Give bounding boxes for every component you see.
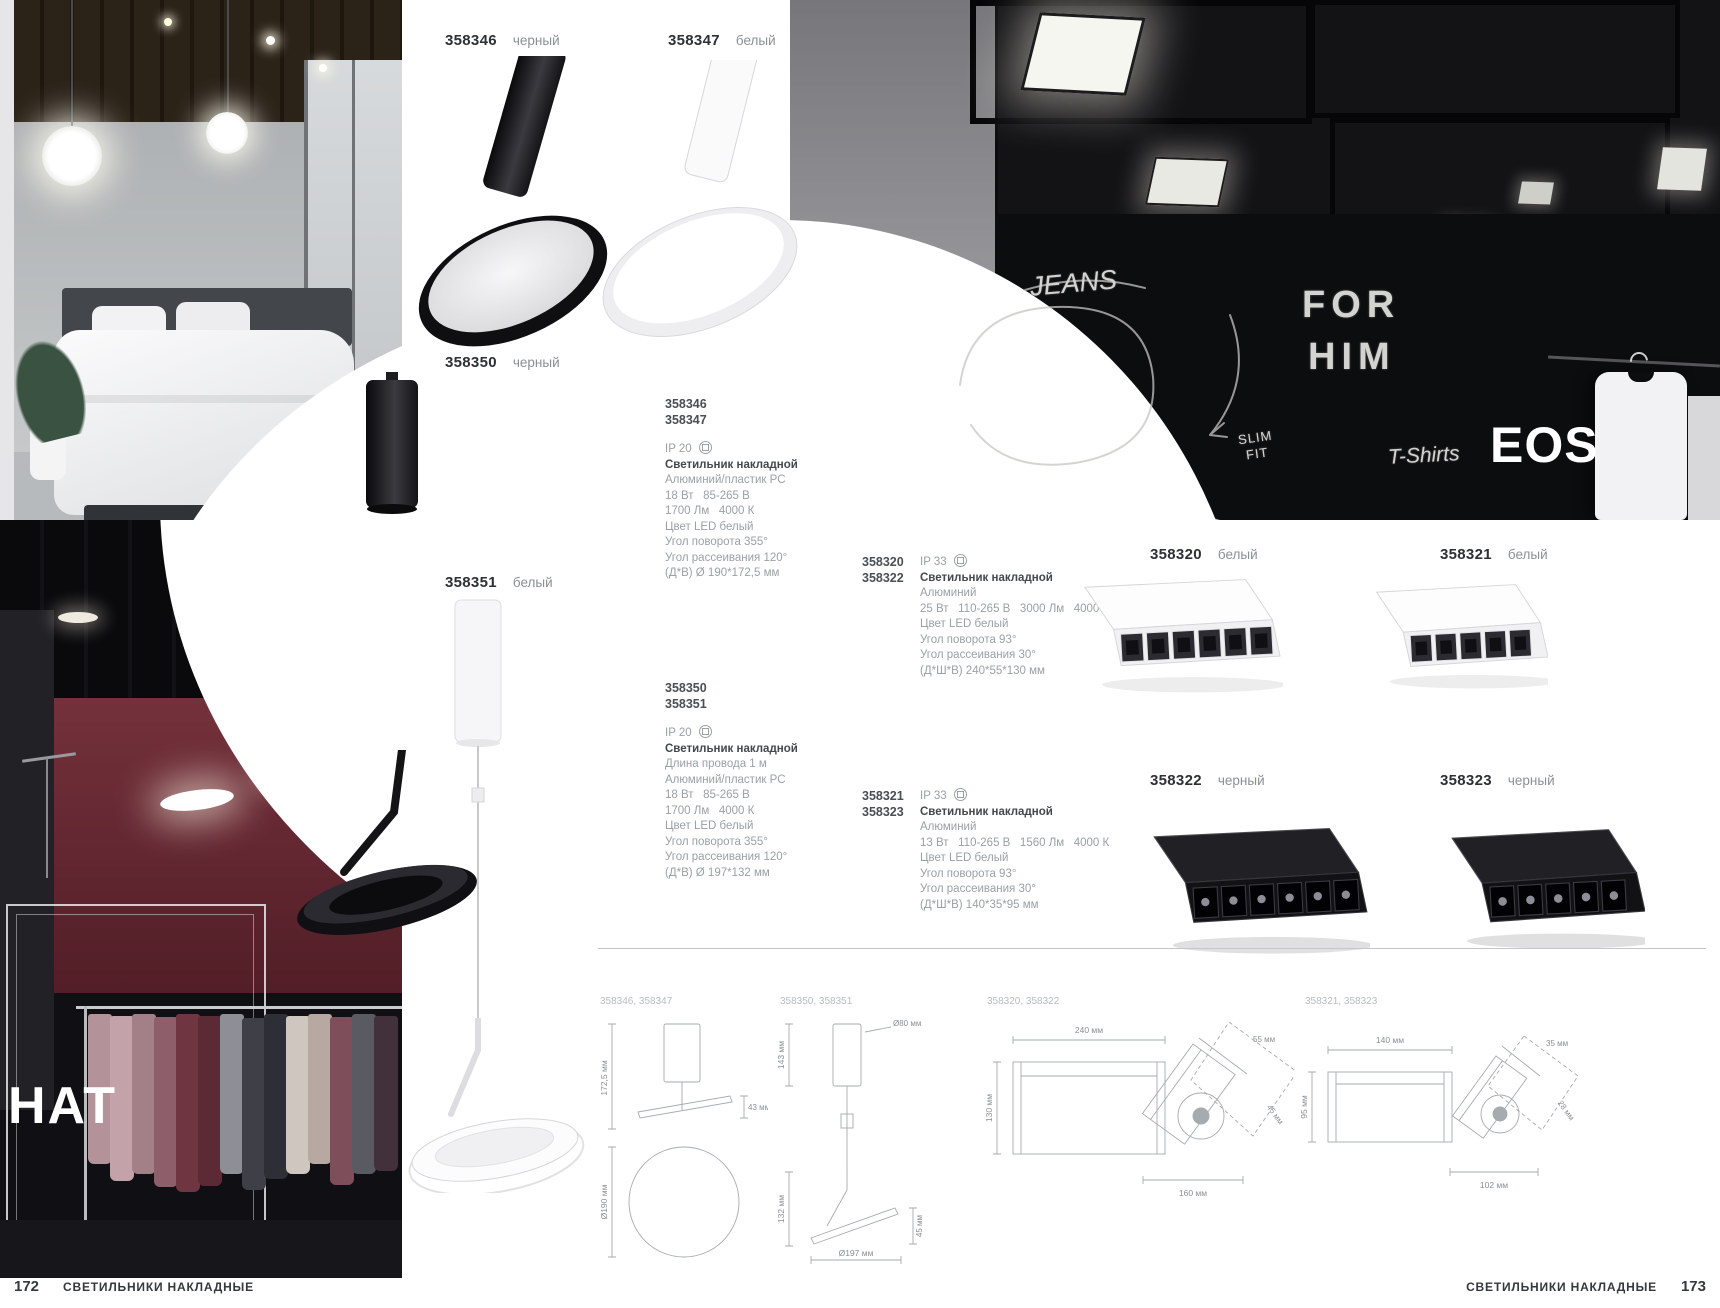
- spec-code: 358321: [862, 788, 908, 804]
- shirt-behind: [1688, 396, 1720, 520]
- dim-text: 95 мм: [1300, 1095, 1309, 1119]
- spec-line: Угол поворота 355°: [665, 835, 865, 851]
- clothing-item: [220, 1014, 244, 1174]
- spec-title: Светильник накладной: [665, 458, 865, 474]
- spec-line: Цвет LED белый: [920, 851, 1109, 867]
- dimension-diagram-358346-358347: 172,5 мм 43 мм Ø190 мм: [598, 1014, 768, 1269]
- spec-line: Цвет LED белый: [665, 520, 865, 536]
- product-label-358320: 358320белый: [1150, 546, 1258, 563]
- product-code: 358321: [1440, 546, 1492, 563]
- product-label-358321: 358321белый: [1440, 546, 1548, 563]
- glow-disk: [58, 612, 98, 623]
- dim-text: 132 мм: [776, 1195, 786, 1223]
- dim-text: 35 мм: [1546, 1039, 1568, 1048]
- product-color: черный: [513, 33, 560, 48]
- ceiling-light-panel: [1518, 181, 1554, 204]
- spec-title: Светильник накладной: [920, 805, 1109, 821]
- dim-text: 240 мм: [1075, 1025, 1103, 1035]
- spec-codes: 358346 358347: [665, 396, 865, 428]
- spec-codes: 358350 358351: [665, 680, 865, 712]
- product-image-358346: [408, 56, 623, 356]
- dimension-diagram-358321-358323: 140 мм 95 мм 35 мм 28 мм 102 мм: [1300, 1020, 1590, 1210]
- product-color: белый: [1508, 547, 1548, 562]
- section-divider: [598, 948, 1706, 949]
- spec-line: 1700 Лм 4000 К: [665, 504, 865, 520]
- product-image-358347: [598, 60, 818, 345]
- ip-rating: IP 33: [920, 788, 1109, 805]
- hanger-stand-pole: [46, 758, 48, 878]
- spec-block-358346-358347: 358346 358347 IP 20 Светильник накладной…: [665, 396, 865, 582]
- product-image-358322: [1125, 800, 1370, 980]
- product-color: белый: [736, 33, 776, 48]
- clothing-item: [286, 1016, 310, 1174]
- spec-line: Алюминий/пластик PC: [665, 773, 865, 789]
- dim-text: Ø197 мм: [839, 1248, 874, 1258]
- product-label-358346: 358346черный: [445, 32, 560, 49]
- product-label-358323: 358323черный: [1440, 772, 1555, 789]
- spec-line: Длина провода 1 м: [665, 757, 865, 773]
- mannequin-shirt: [1595, 372, 1687, 520]
- page-number-left: 172: [14, 1278, 39, 1295]
- product-image-358350: [352, 372, 432, 522]
- pendant-lamp-glow: [206, 112, 248, 154]
- clothing-item: [242, 1018, 266, 1190]
- dim-text: 45 мм: [915, 1215, 924, 1237]
- spec-line: Угол рассеивания 30°: [920, 882, 1109, 898]
- diagram-label-358346-358347: 358346, 358347: [600, 996, 672, 1007]
- product-image-358321: [1348, 572, 1548, 700]
- chalk-text-him: HIM: [1308, 336, 1396, 379]
- spec-line: (Д*Ш*В) 140*35*95 мм: [920, 898, 1109, 914]
- dim-text: 160 мм: [1179, 1188, 1207, 1198]
- spec-block-358350-358351: 358350 358351 IP 20 Светильник накладной…: [665, 680, 865, 881]
- clothing-item: [330, 1017, 354, 1185]
- product-image-358323: [1420, 805, 1645, 970]
- product-color: черный: [1508, 773, 1555, 788]
- spec-block-358321-358323: 358321 358323 IP 33 Светильник накладной…: [862, 788, 1162, 913]
- product-code: 358347: [668, 32, 720, 49]
- product-label-358351: 358351белый: [445, 574, 553, 591]
- protection-class-icon: [954, 788, 967, 801]
- spec-line: (Д*В) Ø 190*172,5 мм: [665, 566, 865, 582]
- protection-class-icon: [699, 725, 712, 738]
- clothing-item: [308, 1014, 332, 1164]
- ip-rating: IP 20: [665, 725, 865, 742]
- product-label-358347: 358347белый: [668, 32, 776, 49]
- dim-text: 28 мм: [1556, 1099, 1576, 1122]
- clothing-item: [132, 1014, 156, 1174]
- clothing-item: [176, 1014, 200, 1192]
- ceiling-spot: [164, 18, 172, 26]
- product-color: черный: [513, 355, 560, 370]
- spec-title: Светильник накладной: [665, 742, 865, 758]
- spec-line: 18 Вт 85-265 В: [665, 489, 865, 505]
- ceiling-light-panel: [1657, 147, 1707, 191]
- product-code: 358350: [445, 354, 497, 371]
- spec-code: 358323: [862, 804, 908, 820]
- spec-codes: 358320 358322: [862, 554, 908, 679]
- dim-text: 43 мм: [748, 1103, 768, 1112]
- spec-line: (Д*В) Ø 197*132 мм: [665, 866, 865, 882]
- product-image-358320: [1058, 570, 1283, 702]
- ip-rating: IP 33: [920, 554, 1109, 571]
- product-color: черный: [1218, 773, 1265, 788]
- series-name-hat: HAT: [8, 1076, 117, 1136]
- spec-code: 358351: [665, 696, 865, 712]
- footer-section-title: СВЕТИЛЬНИКИ НАКЛАДНЫЕ: [63, 1280, 254, 1294]
- pendant-lamp-glow: [42, 126, 102, 186]
- bed-fold: [74, 395, 324, 403]
- ceiling-spot: [319, 64, 327, 72]
- pendant-cord: [71, 0, 73, 132]
- chalk-text-for: FOR: [1302, 284, 1400, 327]
- dim-text: Ø190 мм: [599, 1184, 609, 1219]
- spec-line: Угол рассеивания 120°: [665, 850, 865, 866]
- dimension-diagram-358320-358322: 240 мм 130 мм 55 мм 45 мм 160 мм: [985, 1020, 1295, 1210]
- diagram-label-358320-358322: 358320, 358322: [987, 996, 1059, 1007]
- protection-class-icon: [699, 441, 712, 454]
- spec-line: Цвет LED белый: [665, 819, 865, 835]
- chalk-text-fit: FIT: [1245, 445, 1269, 463]
- ceiling-light-panel: [1145, 157, 1229, 208]
- protection-class-icon: [954, 554, 967, 567]
- product-color: белый: [513, 575, 553, 590]
- chalk-text-tshirts: T-Shirts: [1387, 442, 1460, 470]
- clothing-item: [264, 1014, 288, 1179]
- spec-codes: 358321 358323: [862, 788, 908, 913]
- store-floor: [0, 1220, 402, 1278]
- spec-line: Угол поворота 93°: [920, 867, 1109, 883]
- dim-text: 140 мм: [1376, 1035, 1404, 1045]
- photo-bedroom: [14, 0, 402, 575]
- ceiling-coffer: [1310, 0, 1680, 118]
- page-edge-strip: [0, 0, 14, 575]
- dim-text: Ø80 мм: [893, 1019, 921, 1028]
- clothing-item: [154, 1017, 178, 1187]
- product-label-358322: 358322черный: [1150, 772, 1265, 789]
- footer-right: СВЕТИЛЬНИКИ НАКЛАДНЫЕ 173: [1466, 1278, 1706, 1295]
- spec-line: 18 Вт 85-265 В: [665, 788, 865, 804]
- footer-left: 172 СВЕТИЛЬНИКИ НАКЛАДНЫЕ: [14, 1278, 254, 1295]
- dim-text: 130 мм: [985, 1094, 994, 1122]
- product-code: 358322: [1150, 772, 1202, 789]
- dim-text: 55 мм: [1253, 1035, 1275, 1044]
- ceiling-light-panel: [1020, 12, 1145, 96]
- spec-code: 358322: [862, 570, 908, 586]
- dim-text: 102 мм: [1480, 1180, 1508, 1190]
- spec-line: 1700 Лм 4000 К: [665, 804, 865, 820]
- diagram-label-358321-358323: 358321, 358323: [1305, 996, 1377, 1007]
- clothes-rack: [88, 1014, 396, 1192]
- product-code: 358346: [445, 32, 497, 49]
- dim-text: 143 мм: [776, 1041, 786, 1069]
- product-color: белый: [1218, 547, 1258, 562]
- page-number-right: 173: [1681, 1278, 1706, 1295]
- clothes-rail: [76, 1006, 402, 1009]
- product-code: 358351: [445, 574, 497, 591]
- spec-code: 358350: [665, 680, 865, 696]
- product-code: 358323: [1440, 772, 1492, 789]
- spec-line: Угол поворота 355°: [665, 535, 865, 551]
- ip-rating: IP 20: [665, 441, 865, 458]
- spec-line: 13 Вт 110-265 В 1560 Лм 4000 К: [920, 836, 1109, 852]
- spec-line: Угол рассеивания 120°: [665, 551, 865, 567]
- catalog-spread: HAT JEANS FOR HIM SLIM FIT T-Shirts: [0, 0, 1720, 1308]
- clothing-item: [352, 1014, 376, 1174]
- spec-code: 358346: [665, 396, 865, 412]
- pendant-image-black: [282, 750, 492, 940]
- spec-code: 358347: [665, 412, 865, 428]
- ceiling-spot: [266, 36, 275, 45]
- pendant-image-white: [395, 1018, 595, 1193]
- footer-section-title: СВЕТИЛЬНИКИ НАКЛАДНЫЕ: [1466, 1280, 1657, 1294]
- series-name-eos: EOS: [1490, 416, 1599, 474]
- spec-line: Алюминий/пластик PC: [665, 473, 865, 489]
- spec-line: Алюминий: [920, 820, 1109, 836]
- pendant-cord: [227, 0, 229, 118]
- spec-code: 358320: [862, 554, 908, 570]
- clothing-item: [198, 1016, 222, 1186]
- dim-text: 172,5 мм: [599, 1060, 609, 1095]
- product-code: 358320: [1150, 546, 1202, 563]
- dimension-diagram-358350-358351: 143 мм Ø80 мм 132 мм 45 мм Ø197 мм: [775, 1014, 935, 1269]
- product-label-358350: 358350черный: [445, 354, 560, 371]
- diagram-label-358350-358351: 358350, 358351: [780, 996, 852, 1007]
